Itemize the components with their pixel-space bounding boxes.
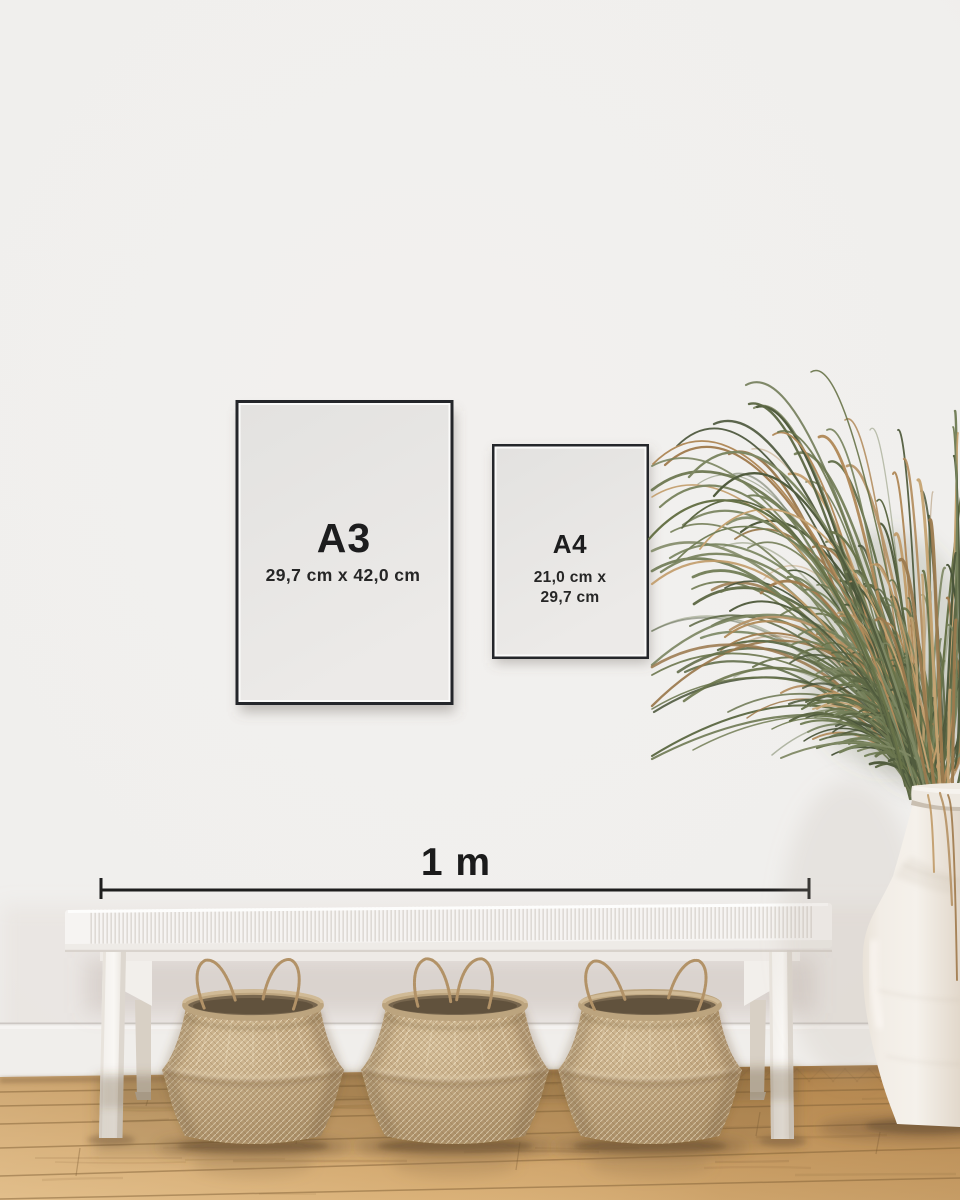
svg-text:29,7 cm x 42,0 cm: 29,7 cm x 42,0 cm xyxy=(266,565,421,585)
svg-text:21,0 cm x: 21,0 cm x xyxy=(534,569,607,586)
svg-text:A3: A3 xyxy=(317,515,371,561)
svg-text:29,7 cm: 29,7 cm xyxy=(541,589,600,606)
svg-text:1 m: 1 m xyxy=(421,841,491,884)
svg-text:A4: A4 xyxy=(553,529,587,559)
